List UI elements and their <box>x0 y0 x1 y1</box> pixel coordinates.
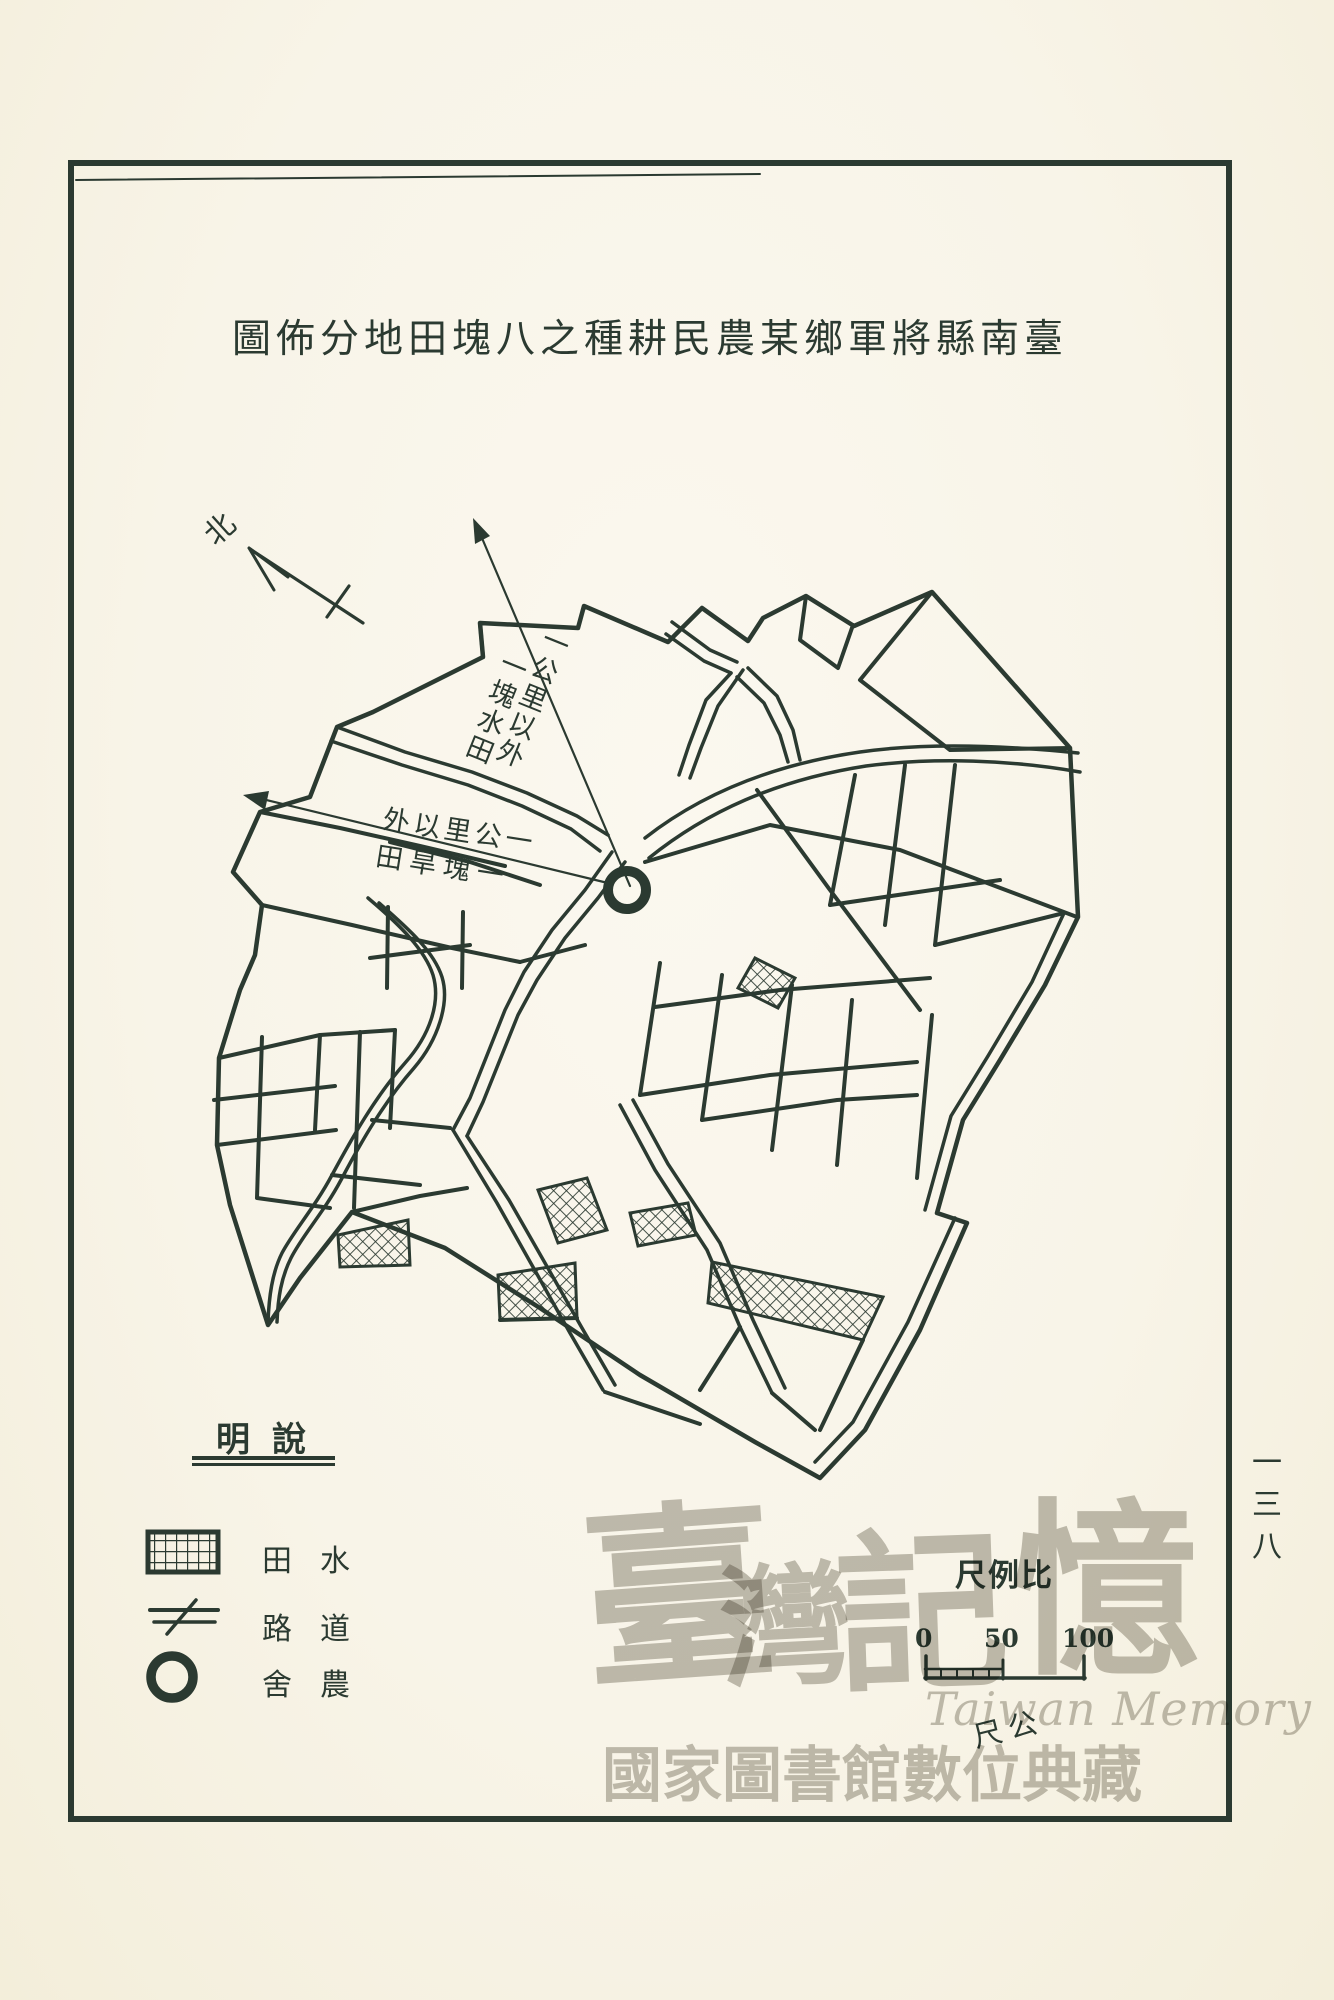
legend-title: 明說 <box>216 1412 328 1461</box>
map-title: 圖佈分地田塊八之種耕民農某鄉軍將縣南臺 <box>228 310 1072 370</box>
north-arrow <box>249 548 363 623</box>
watermark-char-yi: 憶 <box>1012 1498 1200 1686</box>
watermark-char-ji: 記 <box>833 1525 1011 1703</box>
watermark-latin-text: Taiwan Memory <box>925 1686 1312 1732</box>
legend-title-underline <box>192 1456 335 1466</box>
page-number: 一三八 <box>1248 1446 1278 1572</box>
legend-item-farmhouse-label: 舍農 <box>262 1660 378 1704</box>
scanned-map-page: 圖佈分地田塊八之種耕民農某鄉軍將縣南臺 北 一公里以外 一塊水田 外以里公一 田… <box>0 0 1334 2000</box>
parcel-lines <box>214 592 1077 1430</box>
road-symbol <box>150 1600 218 1634</box>
watermark-institution-text: 國家圖書館數位典藏 <box>602 1746 1142 1806</box>
paddy-field-parcels <box>338 958 883 1340</box>
farmhouse-symbol <box>151 1656 193 1698</box>
legend-item-paddy-label: 田水 <box>262 1536 378 1580</box>
paddy-field-swatch <box>148 1532 218 1572</box>
legend-item-road-label: 路道 <box>262 1604 378 1648</box>
frame-top-double-line <box>76 174 760 180</box>
legend-symbols <box>148 1532 218 1698</box>
